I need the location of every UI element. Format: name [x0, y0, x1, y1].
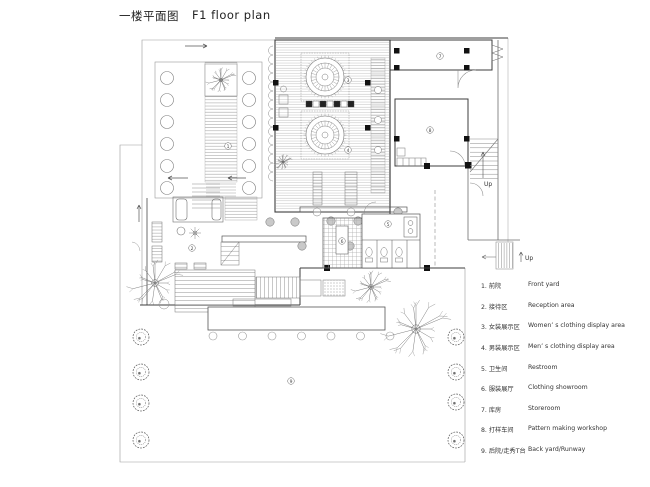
svg-text:5: 5	[387, 222, 390, 228]
area-marker: 7	[437, 53, 444, 60]
legend-item-en: Clothing showroom	[528, 384, 588, 391]
bush-icon	[133, 329, 149, 345]
floor-plan-page: { "title": { "zh": "一楼平面图", "en": "F1 fl…	[0, 0, 650, 487]
legend-item-en: Restroom	[528, 364, 557, 371]
legend-item-en: Reception area	[528, 302, 575, 309]
legend-item-zh: 9. 后院/走秀T台	[481, 446, 528, 455]
legend-item: 9. 后院/走秀T台Back yard/Runway	[481, 446, 646, 467]
legend-item: 1. 前院Front yard	[481, 281, 646, 302]
legend-item-zh: 5. 卫生间	[481, 364, 528, 373]
legend-item-en: Back yard/Runway	[528, 446, 585, 453]
bush-icon	[133, 432, 149, 448]
interior-staircase: Up	[470, 139, 498, 188]
legend-item: 5. 卫生间Restroom	[481, 364, 646, 385]
bush-icon	[448, 329, 464, 345]
exterior-staircase: Up	[482, 242, 533, 269]
legend-item: 6. 服装展厅Clothing showroom	[481, 384, 646, 405]
legend-item: 4. 男装展示区Men’ s clothing display area	[481, 343, 646, 364]
legend-item: 3. 女装展示区Women’ s clothing display area	[481, 322, 646, 343]
fan-icon	[189, 227, 201, 239]
legend: 1. 前院Front yard2. 接待区Reception area3. 女装…	[481, 281, 646, 467]
svg-text:3: 3	[347, 78, 350, 84]
tree-icon	[126, 260, 183, 305]
legend-item-zh: 7. 库房	[481, 405, 528, 414]
svg-text:1: 1	[227, 144, 230, 150]
tree-icon	[351, 271, 391, 303]
legend-item: 2. 接待区Reception area	[481, 302, 646, 323]
area-marker: 9	[288, 378, 295, 385]
bush-icon	[133, 395, 149, 411]
bush-icon	[448, 394, 464, 410]
central-display-hall	[273, 40, 390, 216]
bush-icon	[133, 364, 149, 380]
legend-item-zh: 3. 女装展示区	[481, 322, 528, 331]
legend-item-zh: 8. 打样车间	[481, 425, 528, 434]
up-label-interior: Up	[484, 181, 492, 188]
legend-item-en: Front yard	[528, 281, 559, 288]
svg-text:2: 2	[191, 246, 194, 252]
legend-item-en: Storeroom	[528, 405, 560, 412]
bush-icon	[448, 432, 464, 448]
legend-item: 7. 库房Storeroom	[481, 405, 646, 426]
legend-item-en: Men’ s clothing display area	[528, 343, 615, 350]
svg-text:7: 7	[439, 54, 442, 60]
svg-text:9: 9	[290, 379, 293, 385]
legend-item-en: Pattern making workshop	[528, 425, 607, 432]
bush-icon	[448, 364, 464, 380]
tree-icon	[380, 300, 451, 357]
svg-text:8: 8	[429, 128, 432, 134]
up-label-exterior: Up	[525, 255, 533, 262]
area-marker: 2	[189, 245, 196, 252]
svg-text:4: 4	[347, 148, 350, 154]
area-marker: 8	[427, 127, 434, 134]
runway-stage	[208, 307, 385, 330]
legend-item-zh: 1. 前院	[481, 281, 528, 290]
legend-item-zh: 2. 接待区	[481, 302, 528, 311]
legend-item-zh: 4. 男装展示区	[481, 343, 528, 352]
legend-item: 8. 打样车间Pattern making workshop	[481, 425, 646, 446]
svg-text:6: 6	[341, 239, 344, 245]
legend-item-zh: 6. 服装展厅	[481, 384, 528, 393]
legend-item-en: Women’ s clothing display area	[528, 322, 625, 329]
